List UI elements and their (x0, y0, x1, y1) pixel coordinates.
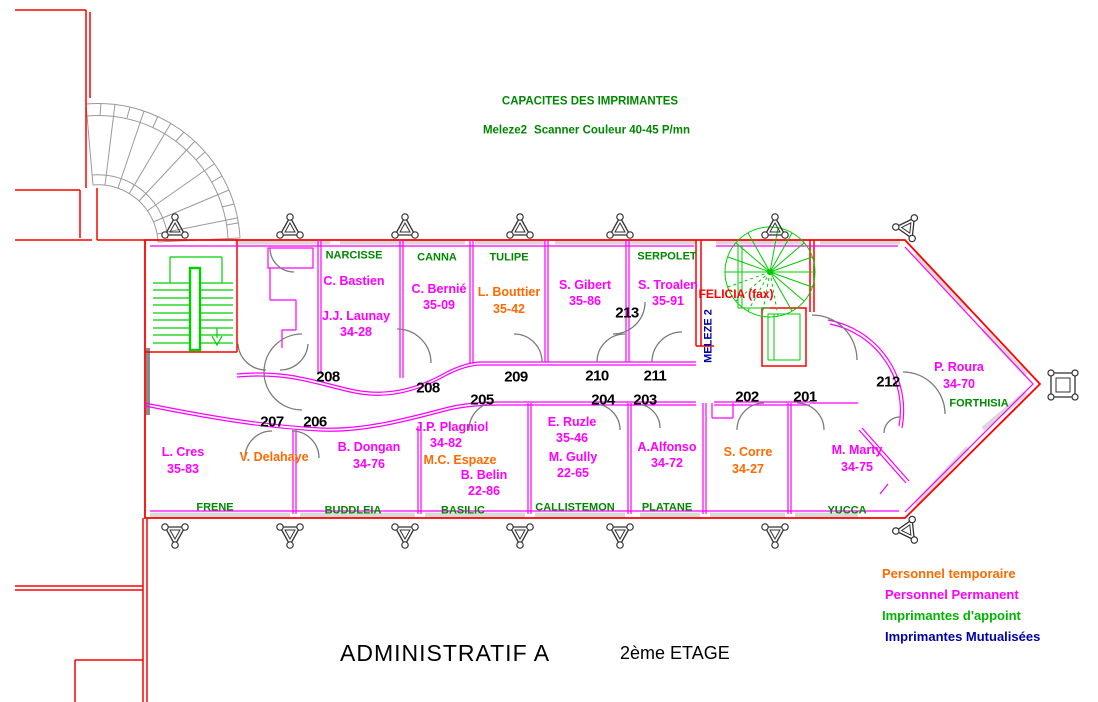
legend-imprimantes-appoint: Imprimantes d'appoint (882, 609, 1021, 622)
occupant-phone-gully: 22-65 (557, 467, 589, 480)
occupant-name-gibert: S. Gibert (559, 279, 611, 292)
occupant-phone-bouttier: 35-42 (493, 303, 525, 316)
floor-title: 2ème ETAGE (620, 643, 730, 664)
occupant-name-belin: B. Belin (461, 469, 508, 482)
occupant-name-bouttier: L. Bouttier (478, 286, 541, 299)
meleze2-label: MELEZE 2 (704, 309, 715, 363)
room-name-serpolet: SERPOLET (637, 252, 696, 263)
occupant-phone-bernie: 35-09 (423, 299, 455, 312)
printer-capacity-title: CAPACITES DES IMPRIMANTES (502, 96, 678, 108)
room-name-frene: FRENE (196, 503, 233, 514)
occupant-name-cres: L. Cres (162, 446, 204, 459)
building-title: ADMINISTRATIF A (340, 640, 550, 667)
occupant-name-delahaye: V. Delahaye (239, 451, 308, 464)
occupant-name-bastien: C. Bastien (323, 275, 384, 288)
staircase-left (153, 257, 233, 350)
door-number-211: 211 (644, 369, 667, 384)
door-number-212: 212 (876, 375, 900, 390)
occupant-phone-plagniol: 34-82 (430, 437, 462, 450)
room-name-yucca: YUCCA (827, 506, 866, 517)
occupant-phone-ruzle: 35-46 (556, 432, 588, 445)
printer-name: Meleze2 (483, 125, 527, 137)
door-number-203: 203 (633, 393, 657, 408)
occupant-phone-launay: 34-28 (340, 326, 372, 339)
occupant-name-corre: S. Corre (724, 446, 773, 459)
occupant-name-troalen: S. Troalen (638, 279, 698, 292)
occupant-phone-dongan: 34-76 (353, 458, 385, 471)
printer-box (768, 314, 800, 360)
occupant-phone-gibert: 35-86 (569, 295, 601, 308)
room-name-buddleia: BUDDLEIA (325, 506, 382, 517)
occupant-name-espaze: M.C. Espaze (424, 454, 497, 467)
occupant-name-roura: P. Roura (934, 361, 984, 374)
room-name-callistemon: CALLISTEMON (535, 503, 614, 514)
door-number-207: 207 (260, 415, 284, 430)
room-name-basilic: BASILIC (441, 506, 485, 517)
occupant-phone-cres: 35-83 (167, 463, 199, 476)
door-number-208-b: 208 (416, 381, 440, 396)
occupant-name-alfonso: A.Alfonso (637, 441, 696, 454)
room-name-forthisia: FORTHISIA (949, 399, 1008, 410)
occupant-name-launay: J.J. Launay (322, 310, 390, 323)
door-number-202: 202 (735, 390, 759, 405)
occupant-name-gully: M. Gully (549, 451, 598, 464)
door-number-208-a: 208 (316, 370, 340, 385)
floor-plan: CAPACITES DES IMPRIMANTES Meleze2 Scanne… (0, 0, 1098, 702)
occupant-phone-troalen: 35-91 (652, 295, 684, 308)
legend-personnel-permanent: Personnel Permanent (885, 588, 1019, 601)
room-name-canna: CANNA (417, 253, 457, 264)
felicia-fax-label: FELICIA (fax) (699, 288, 774, 300)
occupant-phone-roura: 34-70 (943, 378, 975, 391)
occupant-phone-corre: 34-27 (732, 463, 764, 476)
door-number-206: 206 (303, 415, 327, 430)
printer-spec: Scanner Couleur 40-45 P/mn (534, 125, 690, 137)
occupant-phone-belin: 22-86 (468, 485, 500, 498)
door-number-205: 205 (470, 393, 494, 408)
occupant-name-bernie: C. Bernié (412, 283, 467, 296)
occupant-phone-alfonso: 34-72 (651, 457, 683, 470)
room-name-platane: PLATANE (642, 503, 692, 514)
legend-personnel-temporaire: Personnel temporaire (882, 567, 1016, 580)
door-number-213: 213 (615, 306, 639, 321)
door-number-204: 204 (591, 393, 615, 408)
occupant-name-ruzle: E. Ruzle (548, 416, 597, 429)
legend-imprimantes-mutualisees: Imprimantes Mutualisées (885, 630, 1040, 643)
occupant-name-marty: M. Marty (832, 444, 883, 457)
room-name-tulipe: TULIPE (489, 253, 528, 264)
door-number-201: 201 (793, 390, 817, 405)
door-number-210: 210 (585, 369, 609, 384)
occupant-name-dongan: B. Dongan (338, 441, 401, 454)
occupant-name-plagniol: J.P. Plagniol (416, 421, 489, 434)
door-number-209: 209 (504, 370, 528, 385)
occupant-phone-marty: 34-75 (841, 461, 873, 474)
fan-structure (86, 103, 240, 242)
room-name-narcisse: NARCISSE (326, 251, 383, 262)
